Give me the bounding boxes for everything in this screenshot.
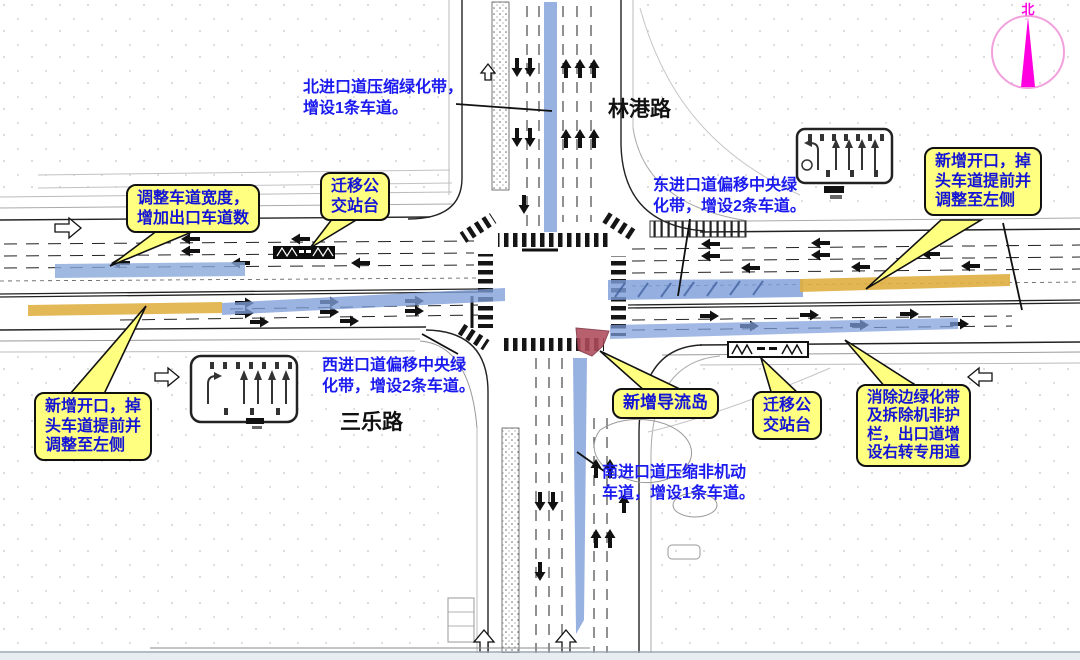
highlight-west-uturn-orange [28,302,222,316]
highlight-north-approach [544,2,557,232]
bus-shelter-west [273,246,335,259]
lane-diagram-southwest [191,356,297,429]
callout-new-opening-east: 新增开口，掉 头车道提前并 调整至左侧 [924,147,1042,216]
highlight-east-uturn-orange [800,274,1010,292]
compass-north-label: 北 [1021,2,1034,17]
highlight-west-approach [222,288,505,315]
road-label-linggang: 林港路 [608,93,671,123]
note-north-approach: 北进口道压缩绿化带， 增设1条车道。 [303,78,463,120]
highlight-west-exit [55,262,245,278]
callout-remove-greenbelt: 消除边绿化带 及拆除机非护 栏，出口道增 设右转专用道 [856,384,971,467]
callout-move-bus-stop-west: 迁移公 交站台 [320,172,390,221]
callout-new-opening-west: 新增开口，掉 头车道提前并 调整至左侧 [34,392,152,461]
intersection-plan-drawing: 北 [0,0,1080,660]
intersection-plan-page: 北 林港路 三乐路 北进口道压缩绿化带， 增设1条车道。 东进口道偏移中央绿 化… [0,0,1080,660]
note-west-approach: 西进口道偏移中央绿 化带，增设2条车道。 [322,356,475,398]
highlight-south-approach [573,358,587,634]
highlight-east-approach [608,279,803,300]
highlight-east-exit [610,318,958,339]
callout-diversion-island: 新增导流岛 [612,388,719,419]
bottom-edge-bar [0,652,1080,660]
callout-move-bus-stop-east: 迁移公 交站台 [752,391,822,440]
diversion-island-shape [576,328,609,356]
bus-shelter-east [728,342,808,357]
note-south-approach: 南进口道压缩非机动 车道，增设1条车道。 [602,463,755,505]
road-label-sanle: 三乐路 [340,406,403,436]
callout-adjust-lane-width: 调整车道宽度， 增加出口车道数 [126,184,260,233]
note-east-approach: 东进口道偏移中央绿 化带，增设2条车道。 [653,176,806,218]
